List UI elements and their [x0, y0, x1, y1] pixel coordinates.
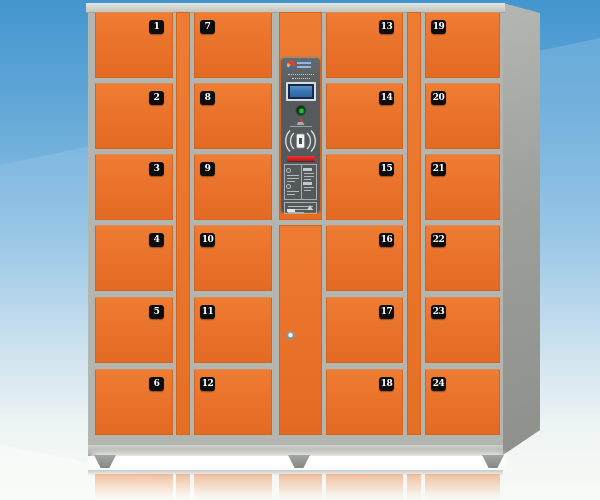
door-number-plate: 14 [379, 91, 394, 105]
door-number-plate: 15 [379, 162, 394, 176]
locker-door: 11 [194, 297, 272, 363]
locker-door: 15 [326, 154, 403, 220]
ticket-slot [287, 156, 315, 161]
door-number-plate: 9 [200, 162, 215, 176]
locker-door: 16 [326, 225, 403, 291]
sensor-led-icon [299, 119, 302, 122]
locker-door: 22 [425, 225, 500, 291]
rfid-reader-icon [281, 129, 320, 153]
door-number-plate: 22 [431, 233, 446, 247]
door-number-plate: 21 [431, 162, 446, 176]
locker-door: 10 [194, 225, 272, 291]
locker-door: 24 [425, 369, 500, 435]
reflection-column [425, 474, 500, 500]
locker-door: 1 [95, 12, 173, 78]
cabinet-base [88, 445, 503, 456]
locker-door: 23 [425, 297, 500, 363]
divider-strip [176, 12, 190, 435]
panel-caption-text [292, 78, 310, 79]
door-number-plate: 19 [431, 20, 446, 34]
lcd-screen [290, 86, 312, 97]
door-number-plate: 11 [200, 305, 215, 319]
door-number-plate: 13 [379, 20, 394, 34]
door-number-plate: 16 [379, 233, 394, 247]
brand-logo-icon [287, 61, 295, 69]
locker-door: 7 [194, 12, 272, 78]
center-service-door [279, 225, 322, 435]
control-panel [281, 57, 320, 212]
reflection-column [176, 474, 190, 500]
lcd-bezel [288, 84, 314, 99]
door-number-plate: 5 [149, 305, 164, 319]
floor-reflection [88, 470, 503, 500]
reflection-column [407, 474, 421, 500]
locker-door: 4 [95, 225, 173, 291]
door-number-plate: 23 [431, 305, 446, 319]
sensor-icon [297, 122, 305, 125]
locker-door: 17 [326, 297, 403, 363]
reflection-column [279, 474, 322, 500]
keyhole-lock-icon [286, 331, 295, 340]
locker-door: 13 [326, 12, 403, 78]
reflection-column [194, 474, 272, 500]
warning-triangle-icon [307, 205, 313, 210]
spec-label-chip [287, 209, 295, 212]
instruction-steps [285, 165, 302, 199]
door-number-plate: 8 [200, 91, 215, 105]
power-indicator-button [295, 105, 306, 116]
locker-door: 20 [425, 83, 500, 149]
door-number-plate: 12 [200, 377, 215, 391]
locker-door: 9 [194, 154, 272, 220]
instruction-notes [302, 165, 316, 199]
cabinet-side-panel [503, 3, 540, 456]
locker-door: 21 [425, 154, 500, 220]
spec-label [284, 202, 317, 214]
product-photo-scene: 123456789101112131415161718192021222324 [0, 0, 600, 500]
door-number-plate: 7 [200, 20, 215, 34]
brand-logo-text [297, 62, 311, 68]
locker-door: 5 [95, 297, 173, 363]
reflection-column [95, 474, 173, 500]
locker-door: 6 [95, 369, 173, 435]
locker-door: 19 [425, 12, 500, 78]
door-number-plate: 2 [149, 91, 164, 105]
door-number-plate: 24 [431, 377, 446, 391]
brand-logo [287, 61, 311, 69]
locker-door: 3 [95, 154, 173, 220]
locker-door: 12 [194, 369, 272, 435]
door-number-plate: 3 [149, 162, 164, 176]
sensor-baseline [290, 126, 312, 127]
reflection-column [326, 474, 403, 500]
instruction-label [284, 164, 317, 200]
lcd-display [286, 82, 316, 101]
door-number-plate: 18 [379, 377, 394, 391]
door-number-plate: 10 [200, 233, 215, 247]
door-number-plate: 17 [379, 305, 394, 319]
locker-door: 2 [95, 83, 173, 149]
door-number-plate: 6 [149, 377, 164, 391]
door-number-plate: 20 [431, 91, 446, 105]
locker-door: 8 [194, 83, 272, 149]
door-number-plate: 1 [149, 20, 164, 34]
divider-strip [407, 12, 421, 435]
locker-door: 18 [326, 369, 403, 435]
panel-caption-text [288, 74, 314, 75]
door-number-plate: 4 [149, 233, 164, 247]
locker-door: 14 [326, 83, 403, 149]
